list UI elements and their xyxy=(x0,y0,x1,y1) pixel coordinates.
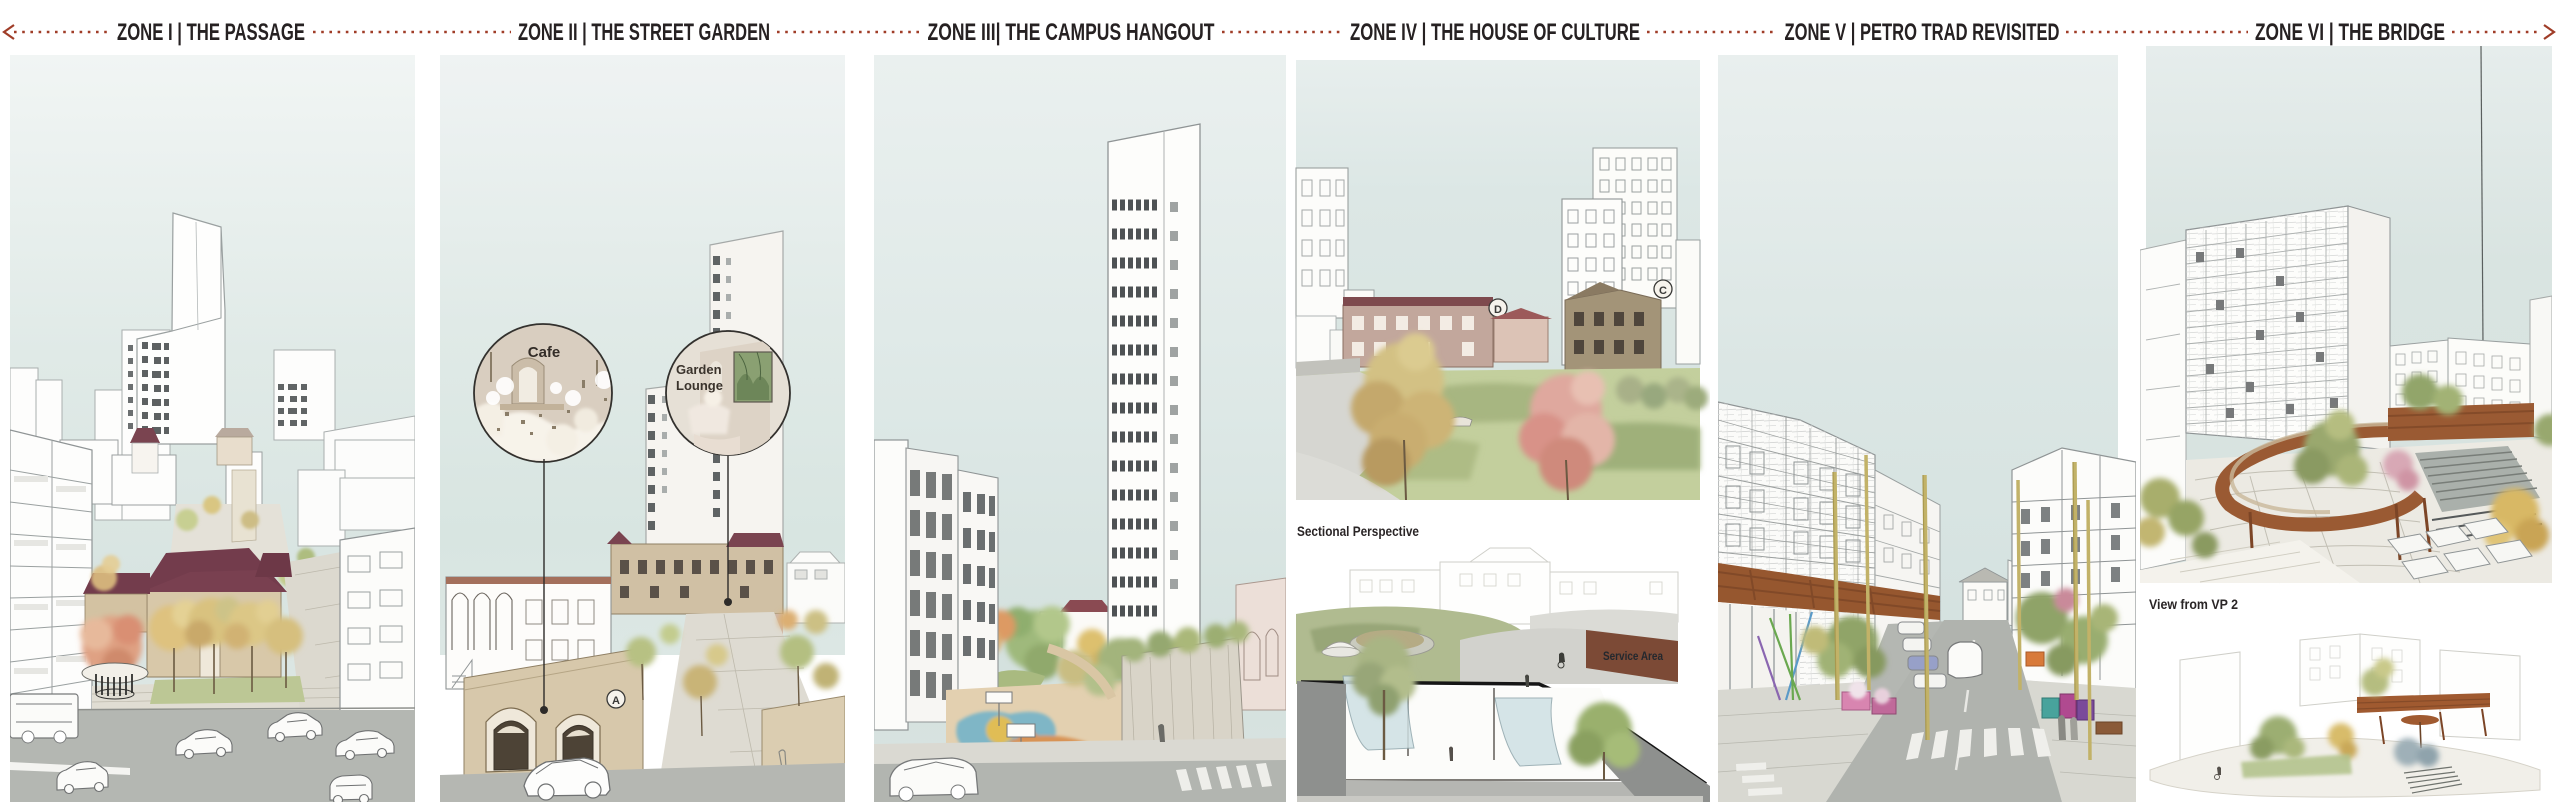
svg-text:ZONE IV | THE HOUSE OF CULTURE: ZONE IV | THE HOUSE OF CULTURE xyxy=(1350,19,1640,46)
svg-text:ZONE VI | THE BRIDGE: ZONE VI | THE BRIDGE xyxy=(2255,19,2445,46)
svg-text:ZONE V | PETRO TRAD REVISITED: ZONE V | PETRO TRAD REVISITED xyxy=(1785,19,2060,46)
svg-text:Garden: Garden xyxy=(676,362,722,377)
svg-text:Sectional Perspective: Sectional Perspective xyxy=(1297,523,1419,539)
svg-text:View from VP 2: View from VP 2 xyxy=(2149,596,2238,612)
svg-text:D: D xyxy=(1494,304,1502,316)
svg-text:A: A xyxy=(612,695,620,707)
svg-text:C: C xyxy=(1659,285,1667,297)
svg-text:Cafe: Cafe xyxy=(528,344,561,361)
svg-text:ZONE I | THE PASSAGE: ZONE I | THE PASSAGE xyxy=(117,19,305,46)
svg-text:ZONE III| THE CAMPUS HANGOUT: ZONE III| THE CAMPUS HANGOUT xyxy=(928,19,1215,46)
svg-text:Lounge: Lounge xyxy=(676,378,723,393)
svg-text:Service Area: Service Area xyxy=(1603,651,1664,663)
svg-text:ZONE II | THE STREET GARDEN: ZONE II | THE STREET GARDEN xyxy=(518,19,770,46)
